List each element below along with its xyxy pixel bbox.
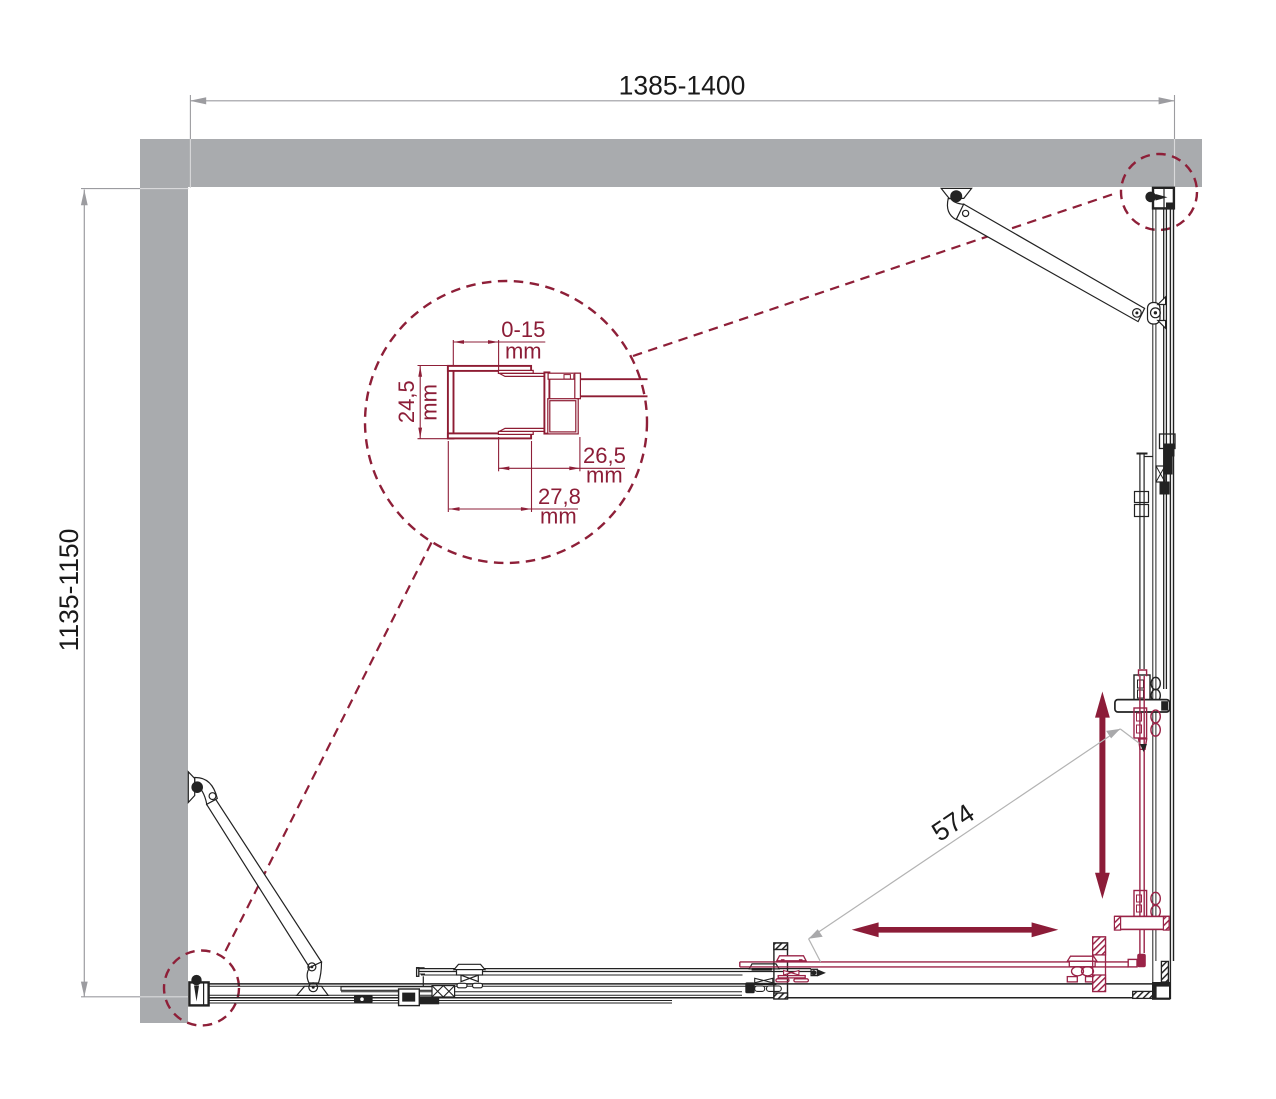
svg-text:mm: mm [505,339,542,364]
svg-text:mm: mm [417,384,442,421]
svg-text:1385-1400: 1385-1400 [619,71,746,101]
svg-text:24,5: 24,5 [394,380,419,423]
svg-text:mm: mm [586,463,623,488]
svg-text:mm: mm [540,504,577,529]
svg-text:1135-1150: 1135-1150 [54,529,84,652]
